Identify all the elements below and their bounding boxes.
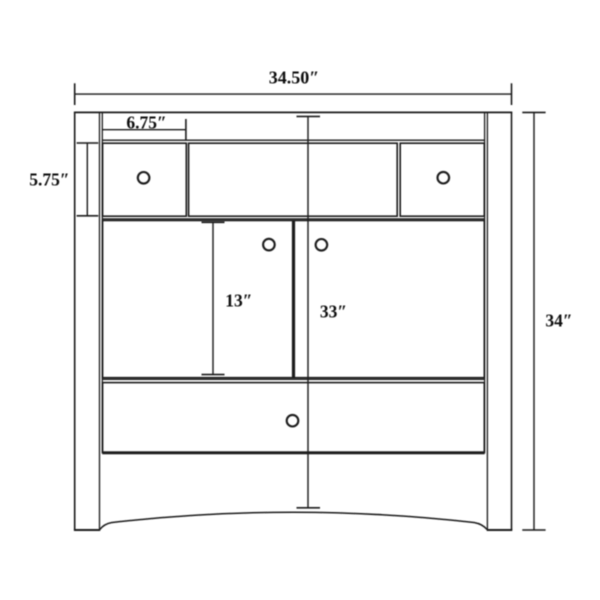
svg-text:34″: 34″ [545, 311, 572, 331]
svg-text:13″: 13″ [225, 291, 252, 311]
svg-text:6.75″: 6.75″ [126, 112, 166, 132]
svg-text:5.75″: 5.75″ [29, 170, 69, 190]
svg-text:34.50″: 34.50″ [269, 68, 319, 88]
svg-text:33″: 33″ [320, 302, 347, 322]
